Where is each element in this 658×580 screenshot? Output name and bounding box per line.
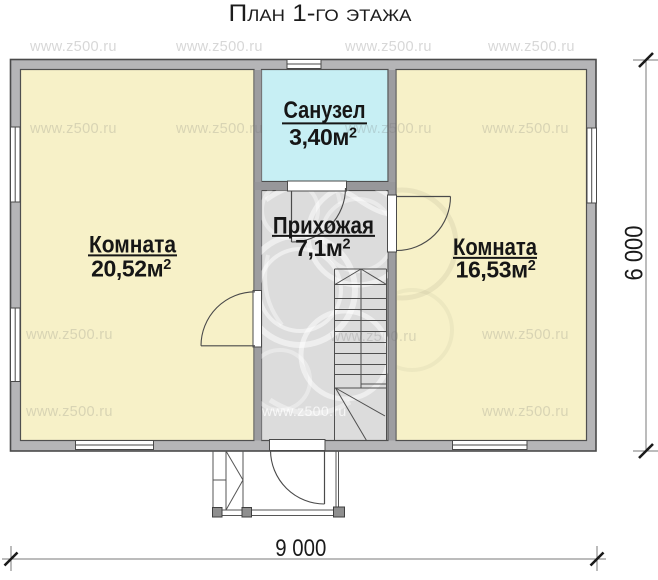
svg-text:www.z500.ru: www.z500.ru bbox=[261, 404, 347, 420]
svg-text:www.z500.ru: www.z500.ru bbox=[481, 404, 569, 420]
svg-text:20,52м2: 20,52м2 bbox=[91, 256, 171, 282]
svg-text:www.z500.ru: www.z500.ru bbox=[25, 404, 113, 420]
svg-text:7,1м2: 7,1м2 bbox=[295, 235, 350, 261]
svg-text:www.z500.ru: www.z500.ru bbox=[344, 39, 432, 55]
svg-text:План 1-го этажа: План 1-го этажа bbox=[229, 0, 413, 27]
svg-text:www.z500.ru: www.z500.ru bbox=[175, 121, 263, 137]
svg-text:www.z500.ru: www.z500.ru bbox=[481, 327, 569, 343]
svg-text:16,53м2: 16,53м2 bbox=[456, 257, 536, 283]
svg-text:3,40м2: 3,40м2 bbox=[289, 124, 357, 150]
svg-text:9 000: 9 000 bbox=[275, 535, 326, 562]
svg-text:www.z500.ru: www.z500.ru bbox=[175, 39, 263, 55]
svg-text:www.z500.ru: www.z500.ru bbox=[481, 121, 569, 137]
svg-text:www.z500.ru: www.z500.ru bbox=[29, 39, 117, 55]
svg-text:Санузел: Санузел bbox=[284, 97, 366, 124]
svg-text:www.z500.ru: www.z500.ru bbox=[29, 121, 117, 137]
svg-text:www.z500.ru: www.z500.ru bbox=[25, 327, 113, 343]
svg-text:www.z500.ru: www.z500.ru bbox=[487, 39, 575, 55]
svg-text:6 000: 6 000 bbox=[621, 226, 649, 281]
